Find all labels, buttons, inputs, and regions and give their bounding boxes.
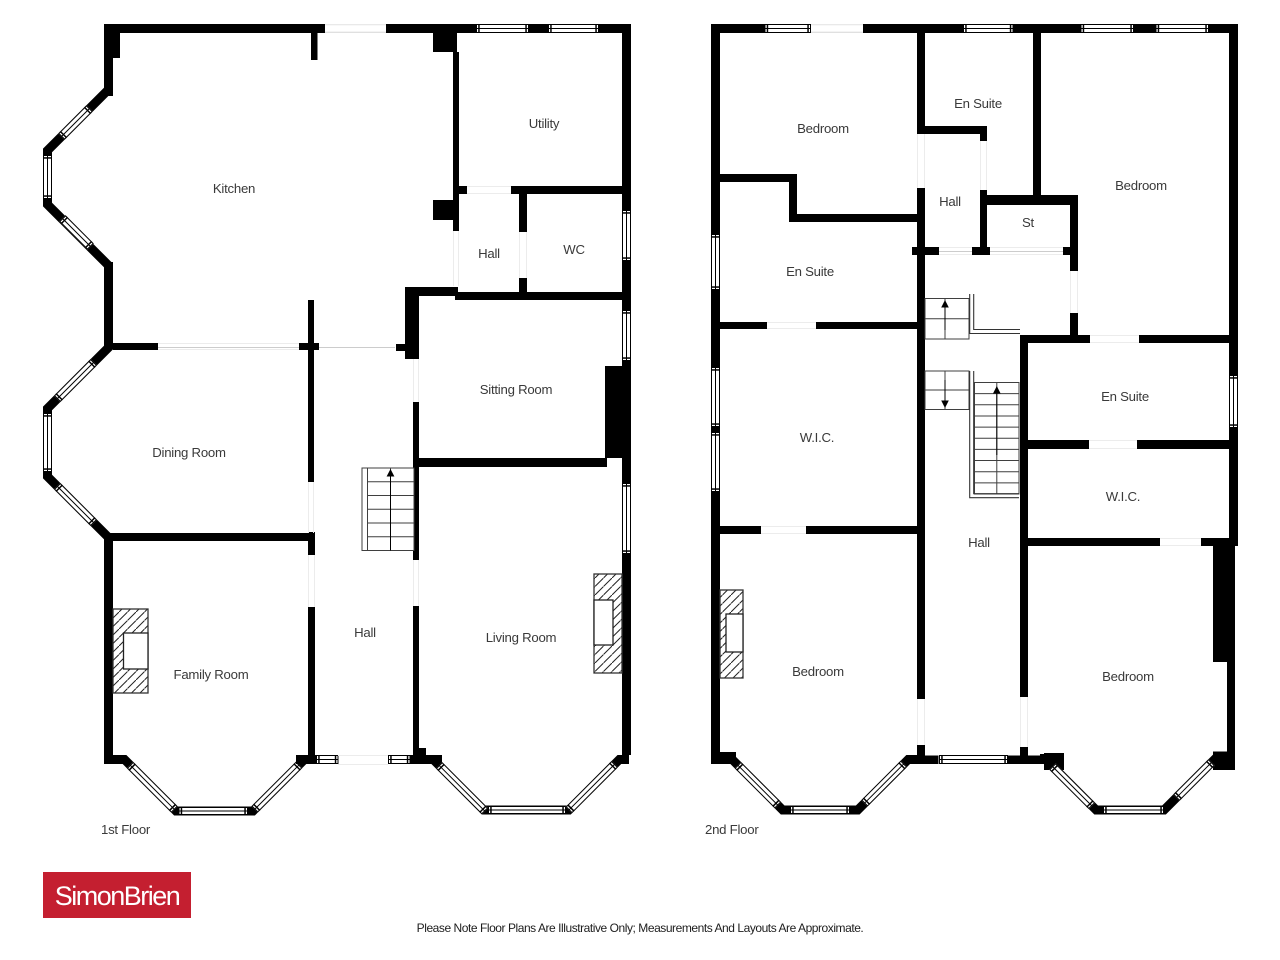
svg-text:Hall: Hall [354, 625, 376, 640]
svg-text:SimonBrien: SimonBrien [55, 881, 180, 911]
svg-text:WC: WC [563, 242, 585, 257]
svg-text:2nd Floor: 2nd Floor [705, 822, 759, 837]
svg-text:Utility: Utility [529, 116, 560, 131]
svg-text:1st Floor: 1st Floor [101, 822, 151, 837]
svg-text:Please Note Floor Plans Are Il: Please Note Floor Plans Are Illustrative… [417, 921, 864, 935]
svg-text:St: St [1022, 215, 1035, 230]
svg-text:En Suite: En Suite [1101, 389, 1149, 404]
svg-text:Family Room: Family Room [174, 667, 249, 682]
svg-text:Hall: Hall [478, 246, 500, 261]
svg-text:En Suite: En Suite [786, 264, 834, 279]
svg-text:Dining Room: Dining Room [152, 445, 226, 460]
svg-text:Hall: Hall [968, 535, 990, 550]
svg-text:W.I.C.: W.I.C. [800, 430, 834, 445]
svg-text:Bedroom: Bedroom [797, 121, 849, 136]
svg-text:Bedroom: Bedroom [1102, 669, 1154, 684]
svg-text:W.I.C.: W.I.C. [1106, 489, 1140, 504]
svg-text:Kitchen: Kitchen [213, 181, 255, 196]
svg-text:Living Room: Living Room [486, 630, 557, 645]
svg-text:En Suite: En Suite [954, 96, 1002, 111]
svg-text:Bedroom: Bedroom [792, 664, 844, 679]
svg-text:Bedroom: Bedroom [1115, 178, 1167, 193]
svg-text:Sitting Room: Sitting Room [480, 382, 553, 397]
svg-text:Hall: Hall [939, 194, 961, 209]
